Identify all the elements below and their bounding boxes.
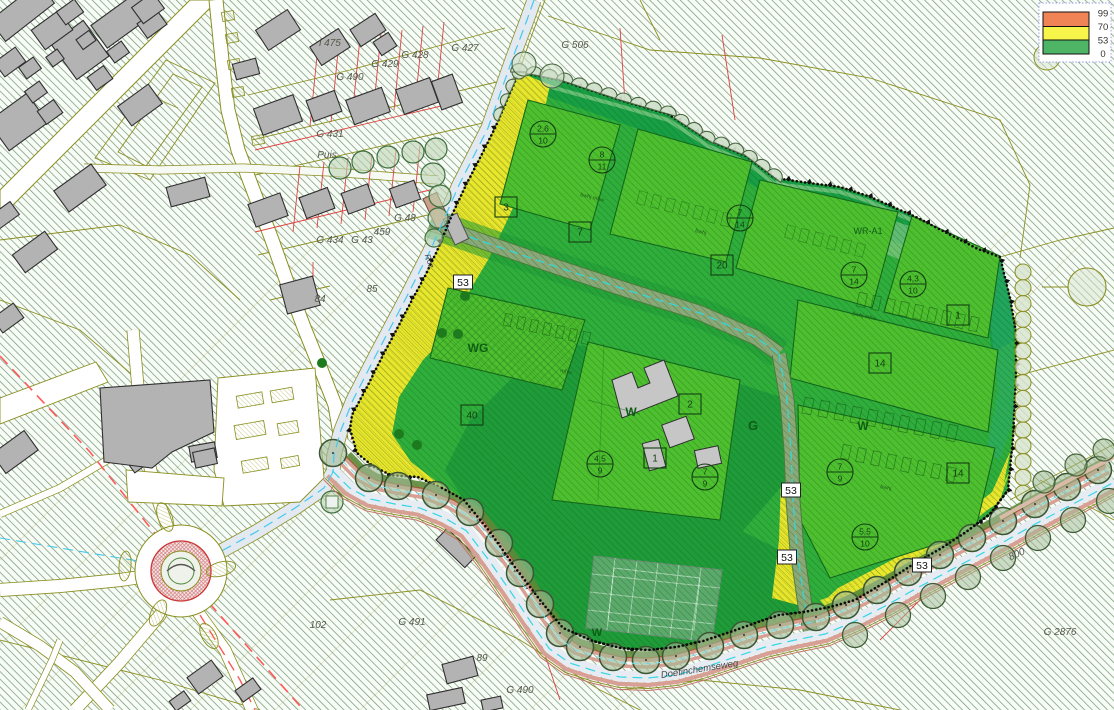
svg-text:10: 10 bbox=[860, 539, 870, 549]
svg-text:53: 53 bbox=[1098, 36, 1109, 47]
svg-text:G 2876: G 2876 bbox=[1044, 627, 1077, 638]
svg-text:14: 14 bbox=[874, 359, 886, 370]
svg-text:G 427: G 427 bbox=[451, 43, 479, 54]
svg-text:89: 89 bbox=[476, 653, 488, 664]
svg-text:G 429: G 429 bbox=[371, 59, 399, 70]
svg-text:84: 84 bbox=[314, 294, 326, 305]
svg-text:14: 14 bbox=[849, 277, 859, 287]
svg-text:7: 7 bbox=[838, 462, 843, 472]
svg-text:G 428: G 428 bbox=[401, 50, 429, 61]
svg-text:70: 70 bbox=[1098, 22, 1109, 33]
svg-text:2,6: 2,6 bbox=[537, 124, 549, 134]
svg-text:20: 20 bbox=[716, 261, 728, 272]
svg-text:Puis: Puis bbox=[317, 150, 336, 161]
svg-text:G 434: G 434 bbox=[316, 235, 344, 246]
svg-text:102: 102 bbox=[310, 620, 327, 631]
svg-text:8: 8 bbox=[600, 150, 605, 160]
svg-text:G 506: G 506 bbox=[561, 40, 589, 51]
svg-text:W: W bbox=[592, 627, 603, 639]
svg-text:10: 10 bbox=[908, 286, 918, 296]
svg-text:G 431: G 431 bbox=[316, 129, 343, 140]
svg-text:1: 1 bbox=[652, 454, 658, 465]
svg-text:5,5: 5,5 bbox=[859, 527, 871, 537]
svg-text:W: W bbox=[857, 419, 869, 433]
svg-text:3: 3 bbox=[503, 203, 509, 214]
svg-text:14: 14 bbox=[735, 220, 745, 230]
svg-text:53: 53 bbox=[916, 560, 928, 572]
svg-text:7: 7 bbox=[852, 265, 857, 275]
svg-text:9: 9 bbox=[703, 479, 708, 489]
svg-text:G 490: G 490 bbox=[336, 72, 364, 83]
svg-text:14: 14 bbox=[952, 469, 964, 480]
svg-text:G 490: G 490 bbox=[506, 685, 534, 696]
svg-text:G 491: G 491 bbox=[398, 617, 425, 628]
svg-text:1: 1 bbox=[955, 311, 961, 322]
svg-text:11: 11 bbox=[598, 162, 607, 172]
svg-text:4,3: 4,3 bbox=[907, 274, 919, 284]
svg-text:7: 7 bbox=[703, 467, 708, 477]
svg-text:2: 2 bbox=[687, 400, 693, 411]
svg-text:99: 99 bbox=[1098, 9, 1109, 20]
svg-text:53: 53 bbox=[781, 552, 793, 564]
svg-text:i 475: i 475 bbox=[319, 38, 341, 49]
svg-text:53: 53 bbox=[785, 485, 797, 497]
svg-text:G 43: G 43 bbox=[351, 235, 373, 246]
svg-text:459: 459 bbox=[374, 227, 391, 238]
svg-text:7: 7 bbox=[738, 208, 743, 218]
svg-text:WG: WG bbox=[468, 341, 489, 355]
svg-text:7: 7 bbox=[577, 228, 583, 239]
svg-text:G: G bbox=[748, 418, 758, 433]
svg-text:10: 10 bbox=[538, 136, 548, 146]
svg-text:G 48: G 48 bbox=[394, 213, 416, 224]
svg-text:85: 85 bbox=[366, 284, 378, 295]
svg-text:53: 53 bbox=[457, 277, 469, 289]
svg-text:40: 40 bbox=[466, 411, 478, 422]
svg-text:W: W bbox=[625, 405, 637, 419]
svg-text:9: 9 bbox=[838, 474, 843, 484]
svg-text:9: 9 bbox=[598, 466, 603, 476]
svg-text:4,5: 4,5 bbox=[594, 454, 606, 464]
svg-text:WR-A1: WR-A1 bbox=[854, 226, 883, 236]
svg-text:0: 0 bbox=[1100, 49, 1105, 60]
